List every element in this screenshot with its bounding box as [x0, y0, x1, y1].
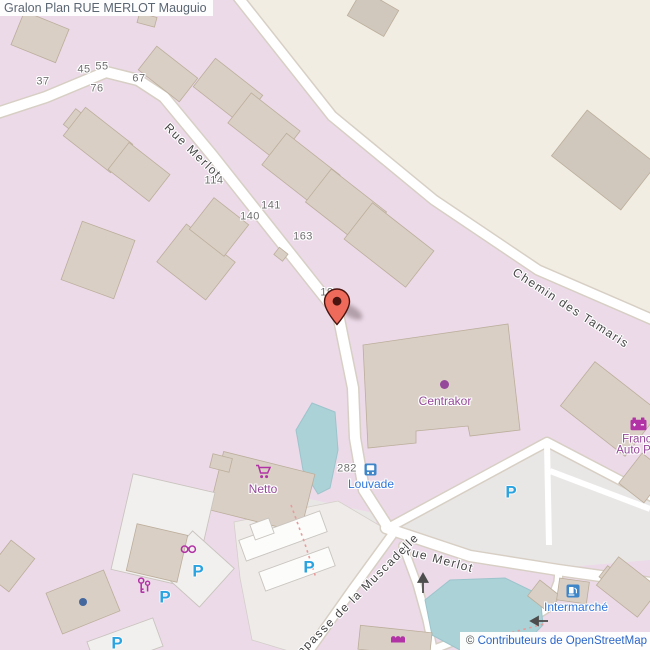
parking-symbol: P [192, 563, 203, 580]
parking-symbol: P [159, 589, 170, 606]
shopping-cart-icon [255, 464, 272, 479]
attribution-link[interactable]: Contributeurs de OpenStreetMap [478, 635, 647, 647]
attribution[interactable]: © Contributeurs de OpenStreetMap [460, 632, 650, 650]
building-white [87, 618, 163, 650]
fuel-station-icon [566, 584, 580, 598]
map-marker-icon[interactable] [322, 288, 352, 326]
house-number-67: 67 [132, 74, 145, 85]
poi-label-netto: Netto [249, 483, 278, 495]
copyright-symbol: © [466, 635, 474, 647]
house-number-140: 140 [240, 212, 260, 223]
poi-dot-icon [440, 380, 449, 389]
shop-awning-icon [390, 633, 406, 644]
blue-dot-icon [79, 598, 87, 606]
house-number-114: 114 [204, 176, 223, 187]
poi-label-france-auto-line2: Auto Piè [616, 445, 650, 457]
glasses-icon [180, 544, 197, 554]
house-number-55: 55 [95, 62, 108, 73]
building [11, 11, 69, 62]
bus-stop-icon [364, 463, 377, 476]
parking-symbol: P [303, 559, 314, 576]
page-title: Gralon Plan RUE MERLOT Mauguio [0, 0, 213, 16]
poi-label-louvade: Louvade [348, 478, 394, 490]
car-battery-icon [630, 417, 647, 431]
parking-symbol: P [111, 635, 122, 650]
poi-label-intermarche: Intermarché [544, 601, 608, 613]
poi-label-centrakor: Centrakor [419, 395, 472, 407]
building [61, 221, 135, 298]
keys-icon [137, 577, 151, 595]
house-number-45: 45 [77, 65, 90, 76]
parking-symbol: P [505, 484, 516, 501]
house-number-76: 76 [90, 84, 103, 95]
building [0, 540, 35, 592]
house-number-37: 37 [36, 77, 49, 88]
house-number-282: 282 [337, 464, 357, 475]
map-canvas[interactable]: Rue Merlot Rue Merlot Chemin des Tamaris… [0, 0, 650, 650]
house-number-141: 141 [261, 201, 281, 212]
house-number-163: 163 [293, 232, 313, 243]
